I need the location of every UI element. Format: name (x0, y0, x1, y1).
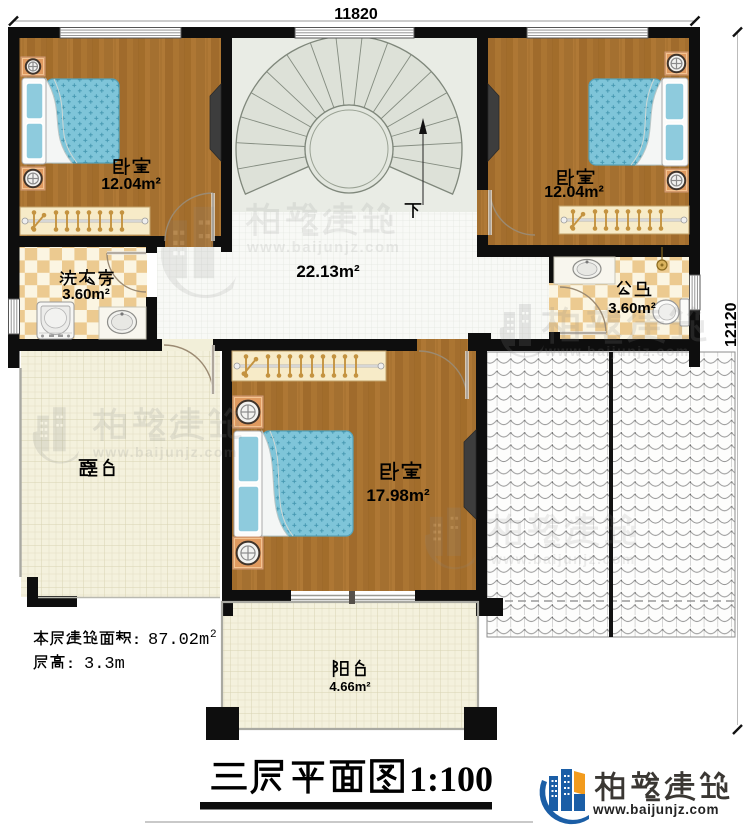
svg-text:www.baijunjz.com: www.baijunjz.com (544, 343, 690, 359)
svg-text:2: 2 (210, 629, 217, 641)
svg-text:3.60m²: 3.60m² (608, 300, 656, 317)
svg-text:87.02m: 87.02m (148, 631, 209, 650)
svg-text:17.98m²: 17.98m² (366, 486, 430, 505)
svg-text:3.60m²: 3.60m² (62, 286, 110, 303)
svg-text:3.3m: 3.3m (84, 655, 125, 674)
svg-text:12.04m²: 12.04m² (544, 184, 604, 201)
svg-text:4.66m²: 4.66m² (329, 679, 371, 694)
svg-text:1:100: 1:100 (409, 759, 493, 799)
svg-text::: : (68, 655, 73, 672)
svg-text:12120: 12120 (723, 302, 740, 347)
svg-text:www.baijunjz.com: www.baijunjz.com (246, 239, 400, 256)
svg-text:www.baijunjz.com: www.baijunjz.com (490, 551, 636, 567)
svg-text:www.baijunjz.com: www.baijunjz.com (592, 802, 719, 817)
svg-text::: : (134, 631, 139, 648)
svg-text:11820: 11820 (334, 6, 378, 23)
svg-text:12.04m²: 12.04m² (101, 176, 161, 193)
svg-text:www.baijunjz.com: www.baijunjz.com (92, 444, 238, 460)
svg-text:22.13m²: 22.13m² (296, 262, 360, 281)
